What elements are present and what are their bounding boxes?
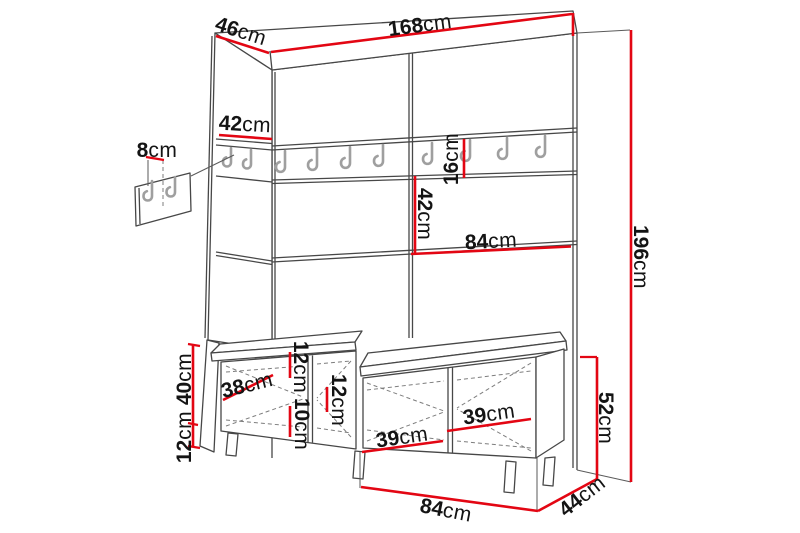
- dim-label-hook-panel-width: 42cm: [218, 112, 271, 138]
- furniture-dimension-diagram: 168cm 46cm 42cm 8cm 16cm 42cm 84cm 196cm…: [0, 0, 800, 533]
- dim-label-rail-height: 16cm: [440, 133, 463, 185]
- dim-label-clearance-upper: 12cm: [289, 341, 312, 393]
- dim-label-bench-depth: 44cm: [555, 471, 610, 521]
- dim-label-leg-height: 12cm: [173, 411, 196, 463]
- dim-label-wall-panel-height: 8cm: [137, 139, 178, 162]
- dim-label-bench-width: 84cm: [418, 494, 474, 527]
- bench-leg: [226, 433, 238, 456]
- dim-label-clearance-lower: 10cm: [290, 398, 313, 450]
- dim-label-bench-total-height: 52cm: [594, 392, 617, 444]
- bench-leg: [543, 457, 555, 486]
- side-panel: [208, 33, 272, 350]
- bench-leg: [353, 451, 365, 479]
- right-bench-side: [536, 349, 564, 458]
- bench-leg: [504, 461, 516, 493]
- dim-label-bench-body-height: 40cm: [173, 353, 196, 405]
- dim-label-niche-width: 84cm: [464, 229, 517, 255]
- dim-label-clearance-right: 12cm: [327, 374, 350, 426]
- dim-tick: [188, 344, 200, 346]
- technical-drawing-canvas: 168cm 46cm 42cm 8cm 16cm 42cm 84cm 196cm…: [0, 0, 800, 533]
- dim-label-niche-height: 42cm: [413, 188, 436, 240]
- dim-label-total-height: 196cm: [629, 225, 652, 289]
